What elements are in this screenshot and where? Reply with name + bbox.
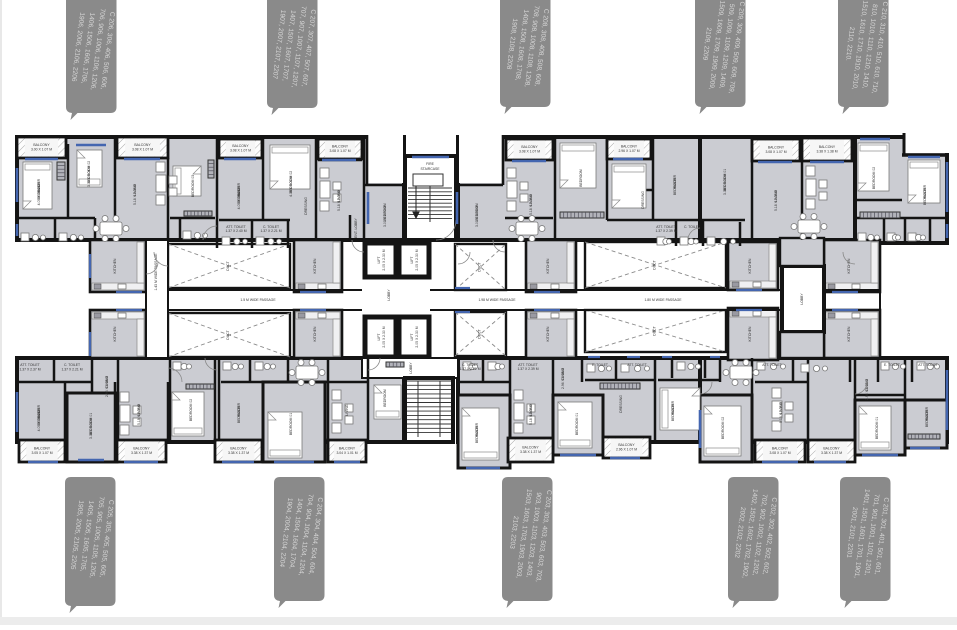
svg-text:1.37 X 2.21 M: 1.37 X 2.21 M [61,367,82,371]
svg-text:LIVING: LIVING [345,404,349,415]
svg-text:BEDROOM: BEDROOM [925,409,929,427]
svg-text:DUCT: DUCT [653,260,657,269]
svg-text:BALCONY: BALCONY [230,447,247,451]
svg-text:BEDROOM: BEDROOM [475,425,479,443]
svg-text:3.08 X 3.15 M: 3.08 X 3.15 M [723,174,727,195]
svg-text:BEDROOM: BEDROOM [383,389,387,407]
svg-text:BEDROOM 02: BEDROOM 02 [872,167,876,189]
svg-text:E. TOILET: E. TOILET [884,363,900,367]
svg-text:KITCHEN: KITCHEN [847,326,851,341]
svg-text:3.38 X 1.37 M: 3.38 X 1.37 M [228,451,249,455]
svg-text:DUCT: DUCT [478,329,482,338]
svg-text:DUCT: DUCT [478,262,482,271]
svg-text:1.37 X 2.39 M: 1.37 X 2.39 M [655,229,676,233]
svg-text:ATT. TOILET: ATT. TOILET [627,363,646,367]
svg-text:2.05 X 2.30 M: 2.05 X 2.30 M [382,326,386,347]
svg-text:BEDROOM 01: BEDROOM 01 [875,417,879,439]
svg-text:1.37 X 2.40 M: 1.37 X 2.40 M [225,229,246,233]
svg-text:LIFT: LIFT [410,334,414,341]
svg-text:2.96 X 1.07 M: 2.96 X 1.07 M [616,448,637,452]
svg-text:BEDROOM: BEDROOM [237,405,241,423]
svg-text:FIRE: FIRE [426,162,434,166]
svg-text:C. TOILET: C. TOILET [64,363,80,367]
svg-text:LIFT: LIFT [377,334,381,341]
svg-text:BEDROOM 02: BEDROOM 02 [189,399,193,421]
svg-text:KITCHEN: KITCHEN [313,326,317,341]
svg-text:LOBBY: LOBBY [409,362,413,374]
svg-text:BEDROOM: BEDROOM [923,187,927,205]
svg-text:2.96 X 1.98 M: 2.96 X 1.98 M [105,376,109,397]
svg-text:BALCONY: BALCONY [332,145,349,149]
svg-text:2.96 X 1.98 M: 2.96 X 1.98 M [865,379,869,400]
svg-text:KITCHEN: KITCHEN [313,258,317,273]
svg-text:2.05 X 2.30 M: 2.05 X 2.30 M [415,249,419,270]
svg-text:BEDROOM 02: BEDROOM 02 [721,417,725,439]
svg-text:5.18 X 3.08 M: 5.18 X 3.08 M [529,404,533,425]
svg-text:5.18 X 3.08 M: 5.18 X 3.08 M [529,194,533,215]
svg-text:KITCHEN: KITCHEN [748,326,752,341]
svg-text:1.5 M WIDE PASSAGE: 1.5 M WIDE PASSAGE [240,298,276,302]
svg-text:ATT. TOILET: ATT. TOILET [20,363,39,367]
svg-text:E. TOILET: E. TOILET [592,363,608,367]
svg-text:2.05 X 2.30 M: 2.05 X 2.30 M [382,249,386,270]
svg-text:5.18 X 3.08 M: 5.18 X 3.08 M [774,190,778,211]
svg-text:BALCONY: BALCONY [618,443,635,447]
svg-text:3.01 X 2.70 M: 3.01 X 2.70 M [383,206,387,227]
svg-text:BALCONY: BALCONY [339,447,356,451]
svg-text:BEDROOM 01: BEDROOM 01 [575,413,579,435]
svg-text:3.38 X 1.37 M: 3.38 X 1.37 M [821,451,842,455]
svg-text:3.08 X 1.07 M: 3.08 X 1.07 M [230,149,251,153]
svg-text:DRESSING: DRESSING [641,191,645,209]
svg-text:DRESSING: DRESSING [619,395,623,413]
svg-text:2.05 X 2.30 M: 2.05 X 2.30 M [415,326,419,347]
svg-text:KITCHEN: KITCHEN [113,326,117,341]
svg-text:3.01 X 3.15 M: 3.01 X 3.15 M [475,206,479,227]
svg-text:BALCONY: BALCONY [823,447,840,451]
svg-text:KITCHEN: KITCHEN [546,258,550,273]
svg-text:3.08 X 1.07 M: 3.08 X 1.07 M [519,150,540,154]
svg-text:4.05 X 3.58 M: 4.05 X 3.58 M [237,188,241,209]
svg-text:KITCHEN: KITCHEN [847,258,851,273]
svg-text:BALCONY: BALCONY [768,146,785,150]
svg-text:1.43 M WIDE PASSAGE: 1.43 M WIDE PASSAGE [154,253,158,291]
svg-text:3.38 X 1.37 M: 3.38 X 1.37 M [131,451,152,455]
svg-text:3.04 X 1.01 M: 3.04 X 1.01 M [336,451,357,455]
svg-text:3.08 X 1.07 M: 3.08 X 1.07 M [329,149,350,153]
svg-text:ATT. TOILET: ATT. TOILET [918,363,937,367]
svg-text:BALCONY: BALCONY [232,144,249,148]
svg-text:BEDROOM: BEDROOM [671,403,675,421]
svg-text:1.37 X 2.39 M: 1.37 X 2.39 M [517,367,538,371]
svg-text:2.96 X 1.98 M: 2.96 X 1.98 M [561,368,565,389]
svg-text:BEDROOM: BEDROOM [673,177,677,195]
svg-text:DUCT: DUCT [226,261,230,270]
svg-text:5.18 X 3.08 M: 5.18 X 3.08 M [133,184,137,205]
svg-text:STAIRCASE: STAIRCASE [421,167,441,171]
svg-text:4.05 X 3.00 M: 4.05 X 3.00 M [289,176,293,197]
svg-text:BALCONY: BALCONY [133,447,150,451]
svg-text:5.18 X 3.08 M: 5.18 X 3.08 M [337,190,341,211]
svg-text:DUCT: DUCT [653,326,657,335]
svg-text:1.37 X 2.21 M: 1.37 X 2.21 M [260,229,281,233]
svg-text:BEDROOM 01: BEDROOM 01 [289,413,293,435]
svg-text:3.00 X 1.07 M: 3.00 X 1.07 M [31,148,52,152]
svg-text:BALCONY: BALCONY [522,446,539,450]
svg-text:DRESSING: DRESSING [304,197,308,215]
svg-text:4.05 X 3.04 M: 4.05 X 3.04 M [37,184,41,205]
svg-text:DUCT: DUCT [226,330,230,339]
svg-text:BALCONY: BALCONY [521,145,538,149]
svg-text:BALCONY: BALCONY [34,447,51,451]
svg-text:BEDROOM: BEDROOM [579,169,583,187]
svg-text:1.37 X 2.21 M: 1.37 X 2.21 M [459,367,480,371]
svg-text:3.08 X 1.07 M: 3.08 X 1.07 M [769,451,790,455]
svg-text:3.38 X 1.38 M: 3.38 X 1.38 M [816,150,837,154]
svg-text:5.18 X 3.08 M: 5.18 X 3.08 M [779,402,783,423]
svg-text:3.38 X 1.37 M: 3.38 X 1.37 M [520,450,541,454]
svg-text:BALCONY: BALCONY [33,143,50,147]
svg-text:KITCHEN: KITCHEN [113,258,117,273]
svg-text:1.37 X 2.37 M: 1.37 X 2.37 M [19,367,40,371]
svg-text:LIFT: LIFT [410,257,414,264]
svg-text:BALCONY: BALCONY [772,447,789,451]
svg-text:BEDROOM 03: BEDROOM 03 [191,175,195,197]
svg-text:4.05 X 3.04 M: 4.05 X 3.04 M [37,410,41,431]
svg-text:3.05 X 1.07 M: 3.05 X 1.07 M [31,451,52,455]
svg-text:KITCHEN: KITCHEN [546,326,550,341]
svg-text:LIFT: LIFT [377,257,381,264]
svg-text:LOBBY: LOBBY [387,289,391,301]
svg-text:2.96 X 1.07 M: 2.96 X 1.07 M [618,149,639,153]
svg-text:BALCONY: BALCONY [134,143,151,147]
svg-text:3.00 X 3.04 M: 3.00 X 3.04 M [87,166,91,187]
svg-text:BALCONY: BALCONY [621,145,638,149]
svg-text:3.08 X 1.07 M: 3.08 X 1.07 M [765,150,786,154]
svg-text:5.18 X 3.08 M: 5.18 X 3.08 M [137,404,141,425]
svg-text:ATT. TOILET: ATT. TOILET [762,363,781,367]
svg-text:ENT. LOBBY: ENT. LOBBY [354,217,358,237]
svg-text:LOBBY: LOBBY [800,293,804,305]
svg-text:1.98 M WIDE PASSAGE: 1.98 M WIDE PASSAGE [478,298,516,302]
svg-text:BALCONY: BALCONY [819,145,836,149]
svg-text:3.08 X 3.15 M: 3.08 X 3.15 M [89,418,93,439]
svg-text:KITCHEN: KITCHEN [748,258,752,273]
svg-text:3.08 X 1.07 M: 3.08 X 1.07 M [132,148,153,152]
svg-text:1.80 M WIDE PASSAGE: 1.80 M WIDE PASSAGE [644,298,682,302]
